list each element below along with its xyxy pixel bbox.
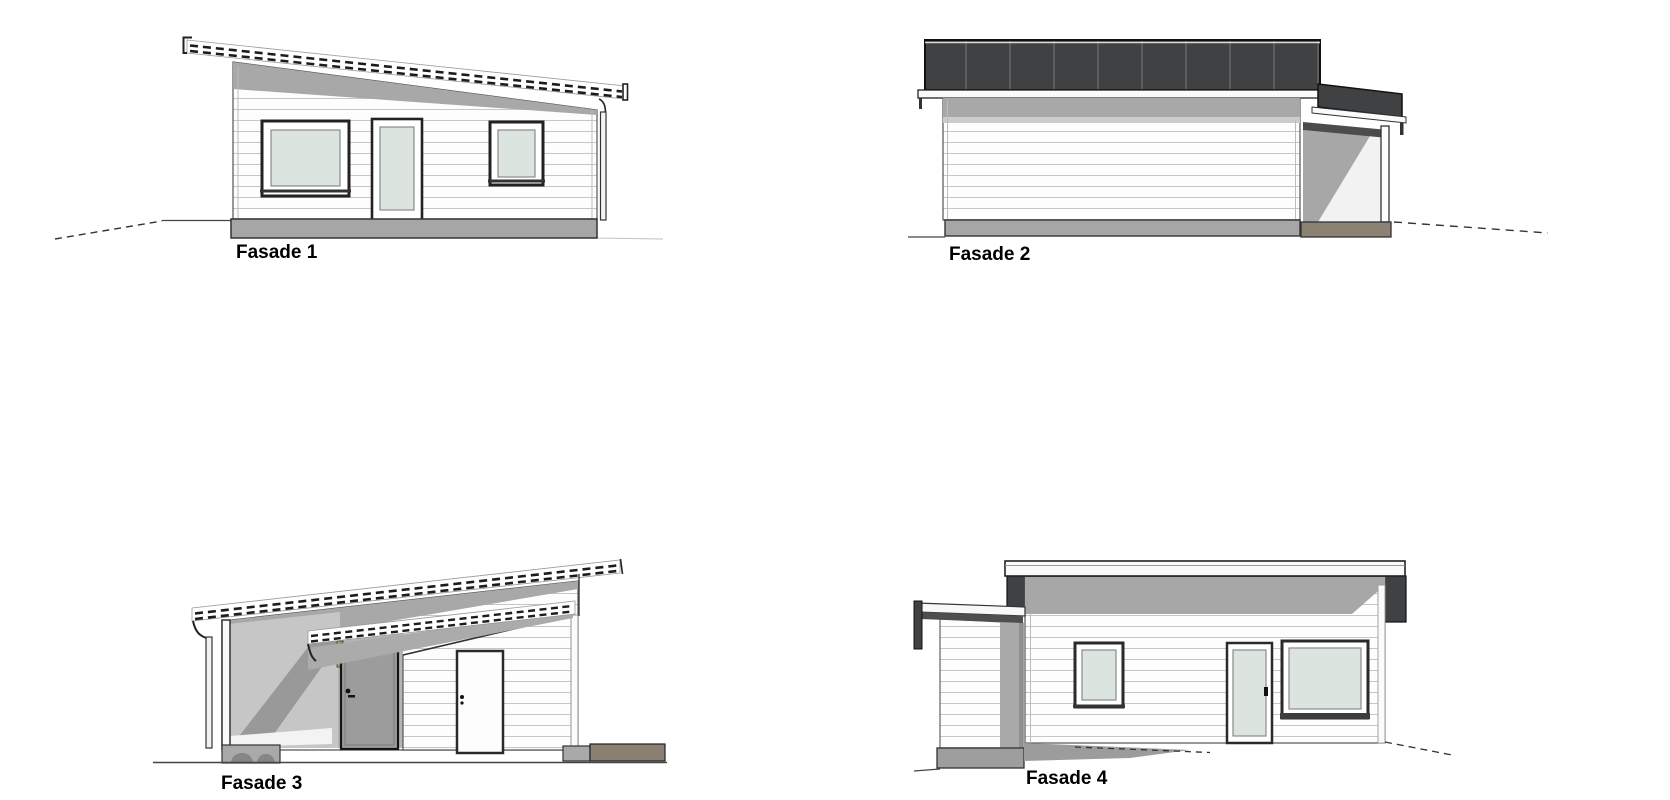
plinth [945, 220, 1300, 236]
ground-shadow [1024, 743, 1190, 761]
gutter-elbow [599, 99, 606, 113]
plinth-left [222, 745, 280, 763]
ground-line-left [914, 769, 940, 771]
eaves-shadow [943, 98, 1300, 117]
door-handle [1264, 687, 1268, 696]
terrace-slab [590, 744, 665, 761]
corner-board [571, 615, 578, 750]
fasade-2-label: Fasade 2 [949, 244, 1030, 266]
door-handle [346, 689, 351, 694]
fasade-4-label: Fasade 4 [1026, 768, 1107, 790]
fasade-3-label: Fasade 3 [221, 773, 302, 795]
window-sill [1280, 713, 1370, 719]
porch-plinth [1301, 222, 1391, 237]
porch [1301, 84, 1406, 237]
fasade-3-elevation [153, 559, 667, 763]
window-large [1280, 641, 1370, 719]
porch-gutter-end [914, 601, 922, 649]
door-handle [460, 695, 464, 699]
porch-annex [914, 601, 1025, 771]
porch-wall-shadow-edge [1019, 621, 1023, 750]
window-small [1073, 643, 1125, 707]
door-keyhole [460, 701, 463, 704]
downspout [599, 99, 606, 220]
roof-end-cap-right [621, 559, 623, 574]
glazed-door [1227, 643, 1272, 743]
porch-fascia-end [1400, 123, 1404, 135]
secondary-door [457, 651, 503, 753]
glazed-door [372, 119, 422, 223]
corner-board-right [1378, 585, 1385, 743]
eaves-shadow [1025, 577, 1385, 614]
elevation-sheet: Fasade 1 Fasade 2 Fasade 3 Fasade 4 [0, 0, 1670, 800]
ground-line-dashed [55, 221, 162, 239]
porch-plinth [937, 748, 1024, 768]
roof-plane-dark [925, 40, 1320, 90]
carport-post [222, 620, 230, 748]
porch-post [1381, 126, 1389, 222]
downspout [193, 621, 212, 748]
window-right [488, 122, 545, 185]
roof-end-cap-right [623, 84, 628, 100]
ground-line-right [597, 238, 663, 239]
plinth [231, 219, 597, 238]
roof-corner-right-dark [1384, 576, 1406, 622]
gutter-elbow [193, 621, 206, 638]
fascia-board [1005, 561, 1405, 576]
fascia-end-left [919, 98, 922, 109]
fasade-1-label: Fasade 1 [236, 242, 317, 264]
elevations-drawing [0, 0, 1670, 800]
ground-line-dashed-right [1385, 742, 1452, 755]
fascia-board [918, 90, 1327, 98]
window-left [260, 121, 351, 196]
ground-line-dashed [1394, 222, 1548, 233]
plinth-right [563, 746, 590, 761]
door-handle-lever [348, 695, 355, 698]
fasade-4-elevation [914, 561, 1452, 771]
fasade-2-elevation [908, 40, 1548, 237]
eaves-shadow-soft [943, 117, 1300, 123]
fasade-1-elevation [55, 38, 663, 240]
